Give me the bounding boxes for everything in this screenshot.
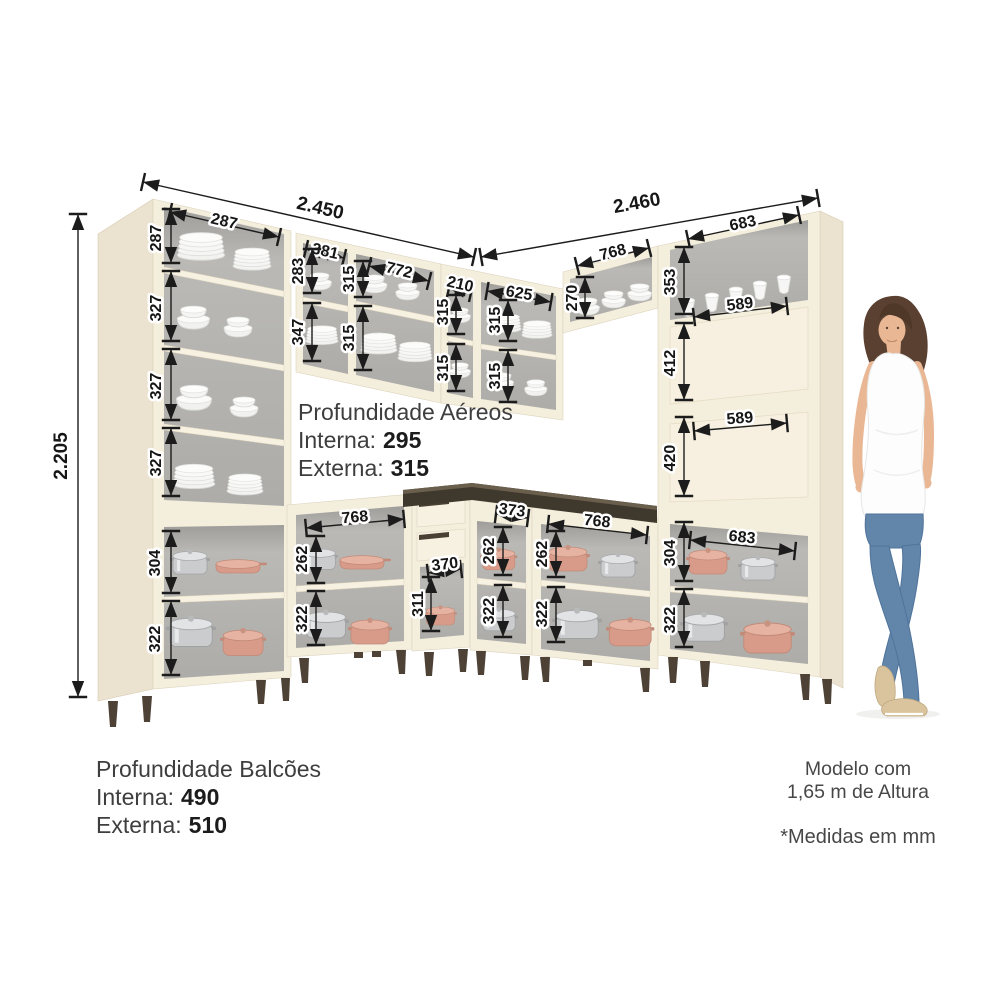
kitchen-dimension-diagram: 2.205 2.450 2.460 287 287 327 327 327 30… bbox=[0, 0, 1000, 1000]
dim-lwc-col2-row1: 315 bbox=[341, 266, 358, 293]
dim-cwc-small-row1: 315 bbox=[435, 299, 452, 326]
aereos-interna-label: Interna: bbox=[298, 427, 376, 453]
dim-lwc-col1-row1: 283 bbox=[290, 258, 307, 285]
modelo-line1: Modelo com bbox=[805, 758, 911, 780]
jeans bbox=[865, 514, 923, 701]
dim-right-run-label: 2.460 bbox=[612, 189, 662, 218]
dim-overall-height-label: 2.205 bbox=[51, 432, 72, 480]
balcoes-title: Profundidade Balcões bbox=[96, 756, 321, 782]
aereos-title: Profundidade Aéreos bbox=[298, 399, 513, 425]
dim-cbc-width: 370 bbox=[431, 555, 460, 575]
right-base-cabinet bbox=[532, 505, 658, 692]
aereos-externa-value: 315 bbox=[391, 455, 430, 481]
note-balcoes: Profundidade Balcões Interna:490 Externa… bbox=[96, 756, 321, 838]
dim-rbc-row1: 262 bbox=[534, 541, 551, 568]
dim-rtc-base-row2: 322 bbox=[662, 607, 679, 634]
dim-ltc-row3: 327 bbox=[148, 373, 165, 400]
dim-cwc-small-row2: 315 bbox=[435, 355, 452, 382]
modelo-line2: 1,65 m de Altura bbox=[787, 781, 929, 803]
dim-cbc-height: 311 bbox=[410, 591, 427, 617]
balcoes-externa-value: 510 bbox=[189, 812, 227, 838]
dim-rwc-row: 270 bbox=[564, 285, 581, 312]
dim-crbc-row1: 262 bbox=[481, 538, 498, 565]
dim-ltc-row2: 327 bbox=[148, 295, 165, 322]
dim-lwc-col1-row2: 347 bbox=[290, 319, 307, 346]
product-image: 2.205 2.450 2.460 287 287 327 327 327 30… bbox=[0, 0, 1000, 1000]
corner-right-base-cabinet bbox=[470, 499, 532, 680]
dim-left-run-label: 2.450 bbox=[295, 193, 346, 224]
dim-lwc-col2-row2: 315 bbox=[341, 325, 358, 352]
balcoes-interna-label: Interna: bbox=[96, 784, 174, 810]
dim-cwc-wide-row1: 315 bbox=[487, 307, 504, 334]
balcoes-externa: Externa:510 bbox=[96, 812, 227, 838]
dim-crbc-row2: 322 bbox=[481, 598, 498, 625]
woman-model bbox=[856, 296, 941, 719]
note-aereos: Profundidade Aéreos Interna:295 Externa:… bbox=[298, 399, 513, 481]
balcoes-externa-label: Externa: bbox=[96, 812, 182, 838]
dim-lbc-row1: 262 bbox=[294, 546, 311, 573]
balcoes-interna: Interna:490 bbox=[96, 784, 219, 810]
dim-ltc-base-row1: 304 bbox=[147, 550, 164, 577]
dim-rbc-row2: 322 bbox=[534, 601, 551, 628]
face bbox=[879, 315, 906, 346]
aereos-externa: Externa:315 bbox=[298, 455, 429, 481]
dim-rtc-base-row1: 304 bbox=[662, 540, 679, 567]
medidas-note: *Medidas em mm bbox=[780, 826, 936, 848]
dim-rbc-width: 768 bbox=[583, 512, 611, 532]
aereos-interna-value: 295 bbox=[383, 427, 422, 453]
dim-ltc-row4: 327 bbox=[148, 450, 165, 477]
dim-overall-height: 2.205 bbox=[51, 214, 78, 697]
dim-rtc-base-width: 683 bbox=[728, 528, 756, 548]
balcoes-interna-value: 490 bbox=[181, 784, 219, 810]
tank-top bbox=[861, 353, 925, 525]
corner-base-cabinet bbox=[412, 489, 470, 676]
dim-rtc-top-row: 353 bbox=[662, 269, 679, 296]
dim-rtc-niche1-height: 412 bbox=[662, 350, 679, 377]
dim-cwc-wide-row2: 315 bbox=[487, 363, 504, 390]
aereos-interna: Interna:295 bbox=[298, 427, 422, 453]
dim-rtc-niche1-width: 589 bbox=[726, 295, 755, 315]
left-tall-cabinet bbox=[98, 199, 291, 727]
dim-crbc-width: 373 bbox=[498, 501, 527, 521]
aereos-externa-label: Externa: bbox=[298, 455, 384, 481]
dim-lbc-width: 768 bbox=[341, 508, 369, 527]
dim-ltc-row1: 287 bbox=[148, 225, 165, 252]
dim-rtc-niche2-width: 589 bbox=[726, 409, 754, 428]
dim-ltc-base-row2: 322 bbox=[147, 626, 164, 653]
dim-lbc-row2: 322 bbox=[294, 606, 311, 633]
note-modelo: Modelo com 1,65 m de Altura *Medidas em … bbox=[780, 758, 936, 848]
right-tall-cabinet bbox=[658, 211, 843, 704]
pot-in-corner-base bbox=[424, 605, 457, 625]
dim-rtc-niche2-height: 420 bbox=[662, 445, 679, 472]
